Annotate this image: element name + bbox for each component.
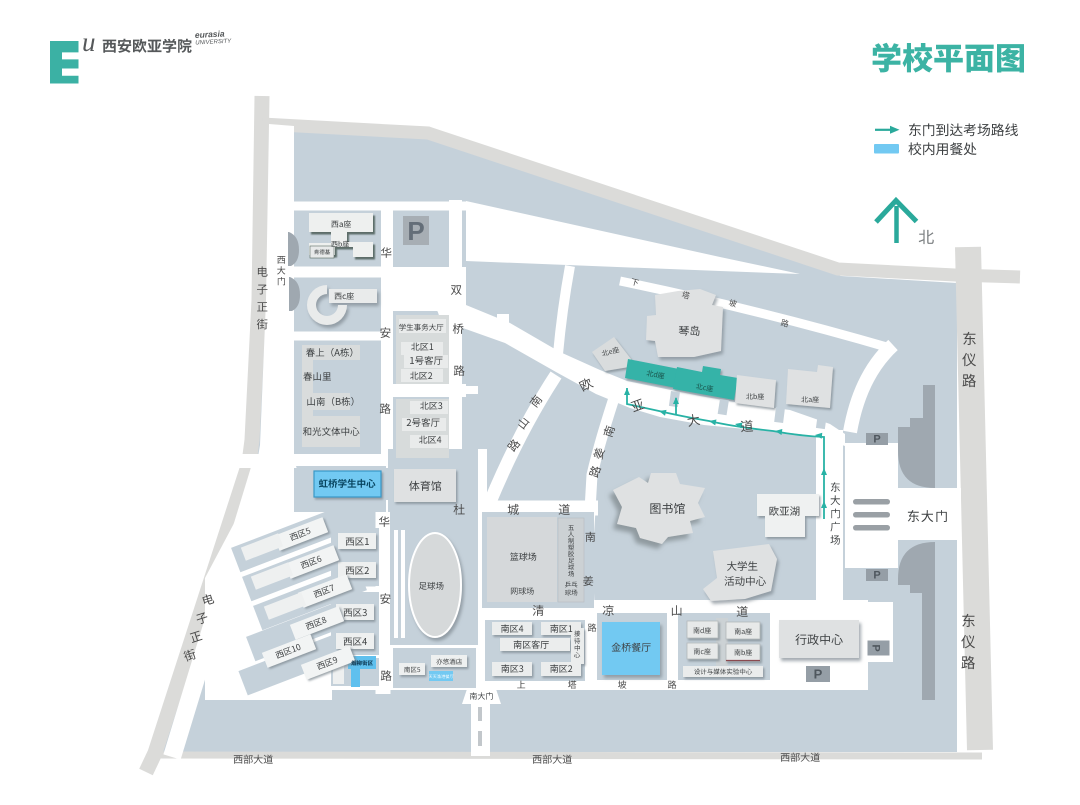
svg-text:P: P: [407, 216, 424, 246]
svg-text:u: u: [82, 27, 96, 57]
svg-text:P: P: [869, 644, 881, 651]
svg-text:P: P: [873, 569, 880, 581]
svg-text:P: P: [873, 433, 880, 445]
svg-text:P: P: [814, 666, 823, 681]
